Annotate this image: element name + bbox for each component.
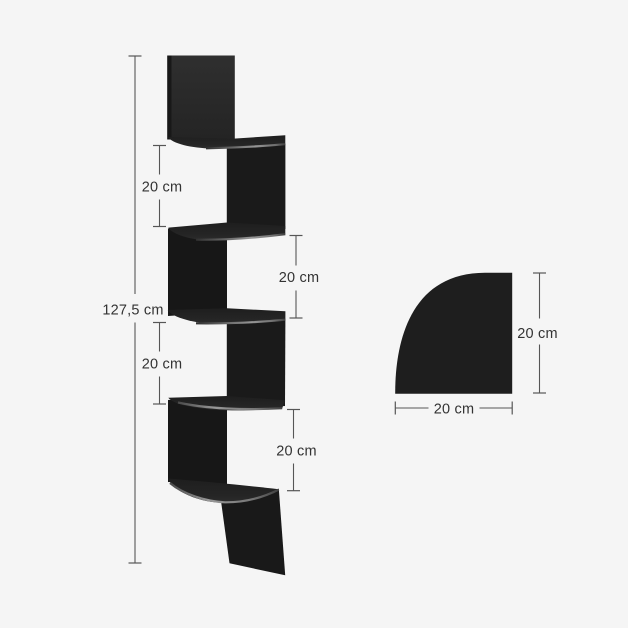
svg-text:20 cm: 20 cm xyxy=(434,401,475,417)
svg-text:20 cm: 20 cm xyxy=(517,326,558,342)
svg-text:20 cm: 20 cm xyxy=(279,270,320,286)
svg-text:127,5 cm: 127,5 cm xyxy=(102,303,163,319)
svg-text:20 cm: 20 cm xyxy=(276,443,317,459)
svg-text:20 cm: 20 cm xyxy=(142,357,183,373)
svg-text:20 cm: 20 cm xyxy=(142,179,183,195)
